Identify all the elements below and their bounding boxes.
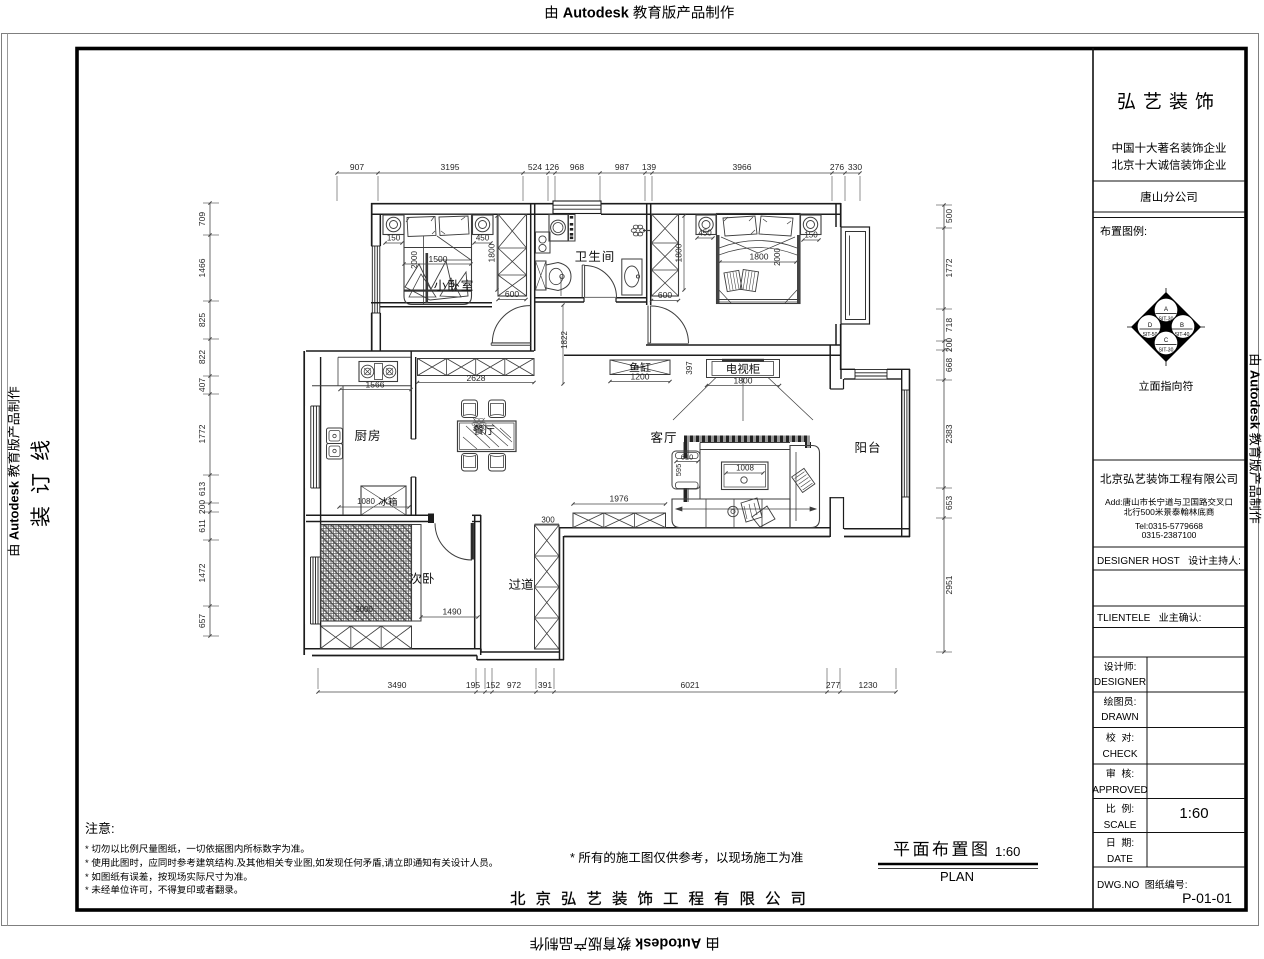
svg-text:*: * (570, 851, 575, 865)
svg-text:1:60: 1:60 (1179, 805, 1208, 822)
svg-text:1800: 1800 (487, 243, 497, 262)
svg-text:DESIGNER: DESIGNER (1094, 677, 1146, 688)
svg-text:,: , (382, 858, 385, 869)
svg-text::: : (1199, 613, 1202, 624)
svg-text:500: 500 (944, 209, 954, 223)
svg-text:DATE: DATE (1107, 854, 1133, 865)
svg-text:450: 450 (698, 229, 712, 238)
svg-text:1472: 1472 (197, 563, 207, 582)
svg-text:152: 152 (486, 680, 500, 690)
svg-text:PLAN: PLAN (940, 869, 974, 884)
svg-text:139: 139 (642, 162, 656, 172)
svg-text:718: 718 (944, 318, 954, 332)
svg-text:*: * (85, 844, 89, 855)
svg-text:330: 330 (848, 162, 862, 172)
svg-text:3195: 3195 (441, 162, 460, 172)
svg-text:2628: 2628 (467, 373, 486, 383)
svg-text::: : (1134, 662, 1137, 673)
svg-text:DESIGNER HOST: DESIGNER HOST (1097, 556, 1180, 567)
svg-text:613: 613 (197, 482, 207, 496)
svg-text::: : (1131, 804, 1134, 815)
svg-text:1800: 1800 (674, 243, 684, 262)
svg-text:200: 200 (197, 500, 207, 514)
svg-text:SIT-30: SIT-30 (1159, 317, 1174, 323)
svg-text:SIT-50: SIT-50 (1143, 332, 1158, 338)
svg-text:657: 657 (197, 614, 207, 628)
svg-text:P-01-01: P-01-01 (1182, 890, 1232, 906)
svg-text:1080: 1080 (357, 497, 375, 506)
svg-text:1772: 1772 (944, 258, 954, 277)
svg-text:SCALE: SCALE (1104, 820, 1137, 831)
svg-text:611: 611 (197, 519, 207, 533)
svg-text:1566: 1566 (366, 380, 385, 390)
svg-text::: : (1238, 556, 1241, 567)
svg-text:1800: 1800 (734, 376, 753, 386)
svg-text:1822: 1822 (560, 331, 569, 349)
svg-text:,: , (312, 858, 315, 869)
svg-text:DRAWN: DRAWN (1101, 712, 1138, 723)
svg-text:*: * (85, 885, 89, 896)
svg-text:150: 150 (387, 234, 401, 243)
svg-text:972: 972 (507, 680, 521, 690)
svg-text:407: 407 (197, 378, 207, 392)
svg-text:1976: 1976 (610, 494, 629, 504)
svg-text:600: 600 (658, 290, 672, 300)
svg-text:1200: 1200 (631, 372, 650, 382)
svg-text:276: 276 (830, 162, 844, 172)
svg-text:150: 150 (804, 231, 818, 240)
svg-text:2383: 2383 (944, 424, 954, 443)
svg-text:1490: 1490 (443, 607, 462, 617)
svg-text:653: 653 (944, 496, 954, 510)
svg-text:195: 195 (466, 680, 480, 690)
svg-text::: : (1144, 226, 1147, 238)
svg-text:1008: 1008 (736, 464, 754, 473)
svg-text:Autodesk: Autodesk (634, 935, 701, 951)
svg-text:2951: 2951 (944, 575, 954, 594)
svg-text:2000: 2000 (773, 248, 782, 266)
svg-text:450: 450 (476, 234, 490, 243)
svg-text:Autodesk: Autodesk (7, 480, 22, 540)
svg-text:600: 600 (505, 289, 519, 299)
svg-text:500: 500 (1141, 507, 1155, 517)
svg-text:1500: 1500 (429, 254, 448, 264)
svg-text:0315-2387100: 0315-2387100 (1142, 530, 1197, 540)
svg-text:Autodesk: Autodesk (563, 6, 630, 22)
svg-text:1772: 1772 (197, 424, 207, 443)
svg-text:907: 907 (350, 162, 364, 172)
svg-text:2000: 2000 (355, 605, 373, 614)
svg-text:SIT-40: SIT-40 (1175, 332, 1190, 338)
svg-text:*: * (85, 872, 89, 883)
svg-text:968: 968 (570, 162, 584, 172)
svg-text:595: 595 (674, 464, 683, 477)
svg-text::: : (1131, 733, 1134, 744)
svg-text:.: . (234, 858, 237, 869)
svg-text:524: 524 (528, 162, 542, 172)
svg-text:3490: 3490 (388, 680, 407, 690)
svg-text:709: 709 (197, 212, 207, 226)
svg-text:APPROVED: APPROVED (1092, 785, 1148, 796)
svg-text:822: 822 (197, 350, 207, 364)
svg-text:1800: 1800 (750, 252, 769, 262)
svg-text:TLIENTELE: TLIENTELE (1097, 613, 1151, 624)
svg-text:300: 300 (541, 516, 555, 525)
svg-text::: : (1131, 769, 1134, 780)
svg-text:987: 987 (615, 162, 629, 172)
svg-text::: : (1134, 697, 1137, 708)
svg-text:D: D (1148, 323, 1153, 329)
svg-text:Add:: Add: (1105, 497, 1123, 507)
svg-text:*: * (85, 858, 89, 869)
svg-text::: : (1131, 838, 1134, 849)
svg-text:A: A (1164, 307, 1168, 313)
svg-text:3966: 3966 (733, 162, 752, 172)
svg-text:397: 397 (685, 361, 694, 375)
svg-text::: : (111, 821, 115, 836)
svg-text:668: 668 (944, 358, 954, 372)
svg-text:391: 391 (538, 680, 552, 690)
svg-text:610: 610 (681, 453, 694, 462)
svg-text:277: 277 (826, 680, 840, 690)
svg-text:6021: 6021 (681, 680, 700, 690)
svg-text:200: 200 (944, 338, 954, 352)
svg-text:1:60: 1:60 (995, 844, 1020, 859)
svg-text:1230: 1230 (859, 680, 878, 690)
svg-text:C: C (1164, 338, 1169, 344)
svg-text:126: 126 (545, 162, 559, 172)
svg-text:B: B (1180, 323, 1184, 329)
svg-text:825: 825 (197, 313, 207, 327)
svg-text:CHECK: CHECK (1102, 749, 1137, 760)
svg-text:1466: 1466 (197, 258, 207, 277)
svg-text:2000: 2000 (410, 251, 419, 269)
svg-text:SIT-30: SIT-30 (1159, 348, 1174, 354)
svg-text:Autodesk: Autodesk (1248, 370, 1263, 430)
svg-text:DWG.NO: DWG.NO (1097, 880, 1139, 891)
